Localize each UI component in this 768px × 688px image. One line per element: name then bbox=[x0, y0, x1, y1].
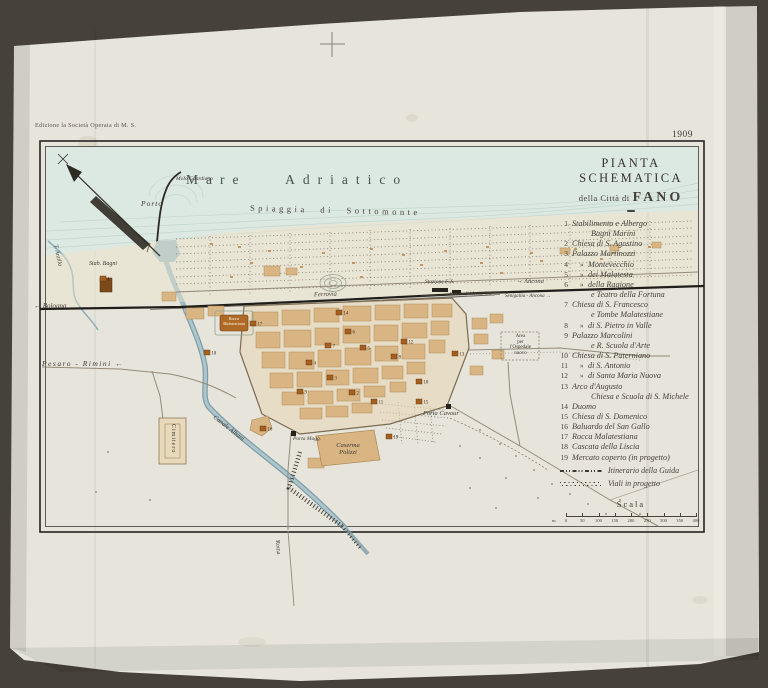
legend-item: 17Rocca Malatestiana bbox=[557, 432, 705, 442]
scale-block: Scala 050100150200250300350400m. bbox=[557, 499, 705, 525]
direction-arrow-icon: → bbox=[546, 294, 551, 299]
legend-item-number: 1 bbox=[557, 219, 568, 229]
label-torrente-arzilla: T. Arzilla bbox=[52, 244, 62, 267]
scale-tick bbox=[680, 513, 681, 517]
legend-item-subline: e R. Scuola d'Arte bbox=[557, 341, 705, 351]
legend-item-number: 13 bbox=[557, 382, 568, 392]
legend-item-label: Chiesa di S. Domenico bbox=[572, 412, 647, 422]
legend-item: 18Cascata della Liscia bbox=[557, 442, 705, 452]
legend-item-label: Palazzo Marcolini bbox=[572, 331, 632, 341]
scale-unit: m. bbox=[552, 518, 557, 523]
scale-title: Scala bbox=[557, 499, 705, 509]
label-bologna: ← Bologna bbox=[34, 302, 66, 310]
legend-item-label: di S. Antonio bbox=[588, 361, 630, 371]
scale-tick bbox=[664, 513, 665, 517]
legend-item-label: Rocca Malatestiana bbox=[572, 432, 638, 442]
label-porta-cavour: Porta Cavour bbox=[423, 410, 459, 417]
legend-item-label: Chiesa di S. Paterniano bbox=[572, 351, 650, 361]
label-stazione: Stazione F. S. bbox=[425, 279, 455, 285]
legend-panel: PIANTA SCHEMATICA della Città diFANO 1St… bbox=[557, 156, 705, 525]
edition-note: Edizione la Società Operaia di M. S. bbox=[35, 122, 136, 129]
legend-item: 13Arco d'Augusto bbox=[557, 382, 705, 392]
legend-item-number: 9 bbox=[557, 331, 568, 341]
legend-item-number: 17 bbox=[557, 432, 568, 442]
label-pesaro-rimini: Pesaro - Rimini ← bbox=[42, 359, 124, 368]
label-cimitero: Cimitero bbox=[170, 424, 176, 453]
legend-item: 7Chiesa di S. Francesco bbox=[557, 300, 705, 310]
scale-tick-label: 0 bbox=[565, 518, 567, 523]
ditto-mark: » bbox=[580, 361, 588, 371]
ditto-mark: » bbox=[580, 260, 588, 270]
scale-tick bbox=[582, 513, 583, 517]
legend-item-label: Palazzo Martinozzi bbox=[572, 249, 635, 259]
label-overlay: Edizione la Società Operaia di M. S. 190… bbox=[0, 0, 768, 688]
legend-item-number: 4 bbox=[557, 260, 568, 270]
legend-item: 12»di Santa Maria Nuova bbox=[557, 371, 705, 381]
scale-tick-label: 150 bbox=[611, 518, 618, 523]
legend-item-number: 10 bbox=[557, 351, 568, 361]
legend-item-label: Baluardo del San Gallo bbox=[572, 422, 650, 432]
legend-item-number: 3 bbox=[557, 249, 568, 259]
label-porto: Porto bbox=[141, 199, 163, 208]
legend-item: 15Chiesa di S. Domenico bbox=[557, 412, 705, 422]
label-ospedale-area: Area per l'Ospedale nuovo bbox=[503, 334, 538, 356]
label-strada-metaurilia: Strada di Metaurilia bbox=[450, 292, 491, 298]
title-ornament bbox=[627, 210, 635, 212]
antique-map-photo: 12345678910111213141516171819 Edizione l… bbox=[0, 0, 768, 688]
ditto-mark: » bbox=[580, 371, 588, 381]
legend-item-label: di Santa Maria Nuova bbox=[588, 371, 661, 381]
scale-labels: 050100150200250300350400m. bbox=[566, 518, 696, 525]
legend-item-label: Arco d'Augusto bbox=[572, 382, 622, 392]
label-stabilimento-bagni: Stab. Bagni bbox=[89, 261, 117, 267]
legend-item-label: dei Malatesta bbox=[588, 270, 633, 280]
legend-item-subline: e Teatro della Fortuna bbox=[557, 290, 705, 300]
legend-item-number: 8 bbox=[557, 321, 568, 331]
legend-item: 2Chiesa di S. Agostino bbox=[557, 239, 705, 249]
legend-item: 10Chiesa di S. Paterniano bbox=[557, 351, 705, 361]
scale-tick bbox=[631, 513, 632, 517]
scale-tick-label: 200 bbox=[628, 518, 635, 523]
label-ancona: → Ancona bbox=[516, 278, 544, 285]
scale-tick-label: 250 bbox=[644, 518, 651, 523]
scale-tick-label: 400 bbox=[693, 518, 700, 523]
label-senigallia-ancona: Senigallia - Ancona → bbox=[505, 294, 551, 299]
legend-item-label: Chiesa di S. Agostino bbox=[572, 239, 642, 249]
label-spiaggia: Spiaggia di Sottomonte bbox=[250, 203, 421, 217]
legend-symbol-viali: Viali in progetto bbox=[557, 479, 705, 489]
scale-tick bbox=[615, 513, 616, 517]
dotted-avenues-icon bbox=[560, 481, 602, 487]
legend-item-label: Mercato coperto (in progetto) bbox=[572, 453, 670, 463]
legend-symbol-itinerary: Itinerario della Guida bbox=[557, 466, 705, 476]
legend-item-number: 14 bbox=[557, 402, 568, 412]
legend-item-label: Montevecchio bbox=[588, 260, 634, 270]
legend-item: 1Stabilimento e Albergo bbox=[557, 219, 705, 229]
label-rocca: Rocca Malatestiana bbox=[221, 317, 247, 327]
legend-item-subline: e Tombe Malatestiane bbox=[557, 310, 705, 320]
legend-list: 1Stabilimento e AlbergoBagni Marini2Chie… bbox=[557, 219, 705, 463]
legend-item-number: 2 bbox=[557, 239, 568, 249]
legend-item: 16Baluardo del San Gallo bbox=[557, 422, 705, 432]
legend-item-label: Duomo bbox=[572, 402, 596, 412]
direction-arrow-icon: ← bbox=[34, 302, 41, 310]
ditto-mark: » bbox=[580, 270, 588, 280]
legend-item: 6»della Ragione bbox=[557, 280, 705, 290]
legend-item-number: 15 bbox=[557, 412, 568, 422]
label-canale-albani: Canale Albani bbox=[212, 414, 246, 443]
legend-item: 19Mercato coperto (in progetto) bbox=[557, 453, 705, 463]
scale-tick bbox=[566, 513, 567, 517]
label-porta-maggiore: Porta Magg. bbox=[293, 436, 321, 442]
label-roma: Roma bbox=[274, 540, 281, 555]
map-title: PIANTA SCHEMATICA bbox=[557, 156, 705, 186]
scale-bar bbox=[566, 512, 696, 517]
scale-tick bbox=[696, 513, 697, 517]
scale-tick-label: 100 bbox=[595, 518, 602, 523]
scale-tick-label: 300 bbox=[660, 518, 667, 523]
label-caserma: Caserma Polizzi bbox=[326, 442, 370, 456]
legend-item-number: 11 bbox=[557, 361, 568, 371]
label-molo-guardiano: Molo Guardiano bbox=[176, 176, 213, 182]
legend-item-subline: Chiesa e Scuola di S. Michele bbox=[557, 392, 705, 402]
scale-tick bbox=[647, 513, 648, 517]
ditto-mark: » bbox=[580, 280, 588, 290]
legend-item: 3Palazzo Martinozzi bbox=[557, 249, 705, 259]
legend-item: 4»Montevecchio bbox=[557, 260, 705, 270]
legend-item-label: della Ragione bbox=[588, 280, 634, 290]
legend-item: 9Palazzo Marcolini bbox=[557, 331, 705, 341]
legend-item-label: Chiesa di S. Francesco bbox=[572, 300, 648, 310]
legend-item-label: di S. Pietro in Valle bbox=[588, 321, 652, 331]
legend-item-number: 16 bbox=[557, 422, 568, 432]
label-ferrovia: Ferrovia bbox=[314, 291, 337, 299]
legend-item-number: 6 bbox=[557, 280, 568, 290]
direction-arrow-icon: → bbox=[516, 278, 523, 285]
legend-item-number: 12 bbox=[557, 371, 568, 381]
scale-tick bbox=[599, 513, 600, 517]
legend-item-number: 19 bbox=[557, 453, 568, 463]
legend-item: 8»di S. Pietro in Valle bbox=[557, 321, 705, 331]
legend-item: 11»di S. Antonio bbox=[557, 361, 705, 371]
direction-arrow-icon: ← bbox=[115, 359, 124, 368]
scale-tick-label: 50 bbox=[580, 518, 585, 523]
scale-tick-label: 350 bbox=[676, 518, 683, 523]
legend-item-number: 7 bbox=[557, 300, 568, 310]
legend-item-number: 18 bbox=[557, 442, 568, 452]
legend-item-label: Stabilimento e Albergo bbox=[572, 219, 647, 229]
year-stamp: 1909 bbox=[672, 130, 693, 140]
map-subtitle: della Città diFANO bbox=[557, 188, 705, 206]
label-mare-adriatico: Mare Adriatico bbox=[186, 172, 408, 188]
legend-item: 5»dei Malatesta bbox=[557, 270, 705, 280]
legend-item-label: Cascata della Liscia bbox=[572, 442, 639, 452]
legend-item: 14Duomo bbox=[557, 402, 705, 412]
ditto-mark: » bbox=[580, 321, 588, 331]
legend-item-subline: Bagni Marini bbox=[557, 229, 705, 239]
legend-item-number: 5 bbox=[557, 270, 568, 280]
itinerary-line-icon bbox=[560, 468, 602, 474]
